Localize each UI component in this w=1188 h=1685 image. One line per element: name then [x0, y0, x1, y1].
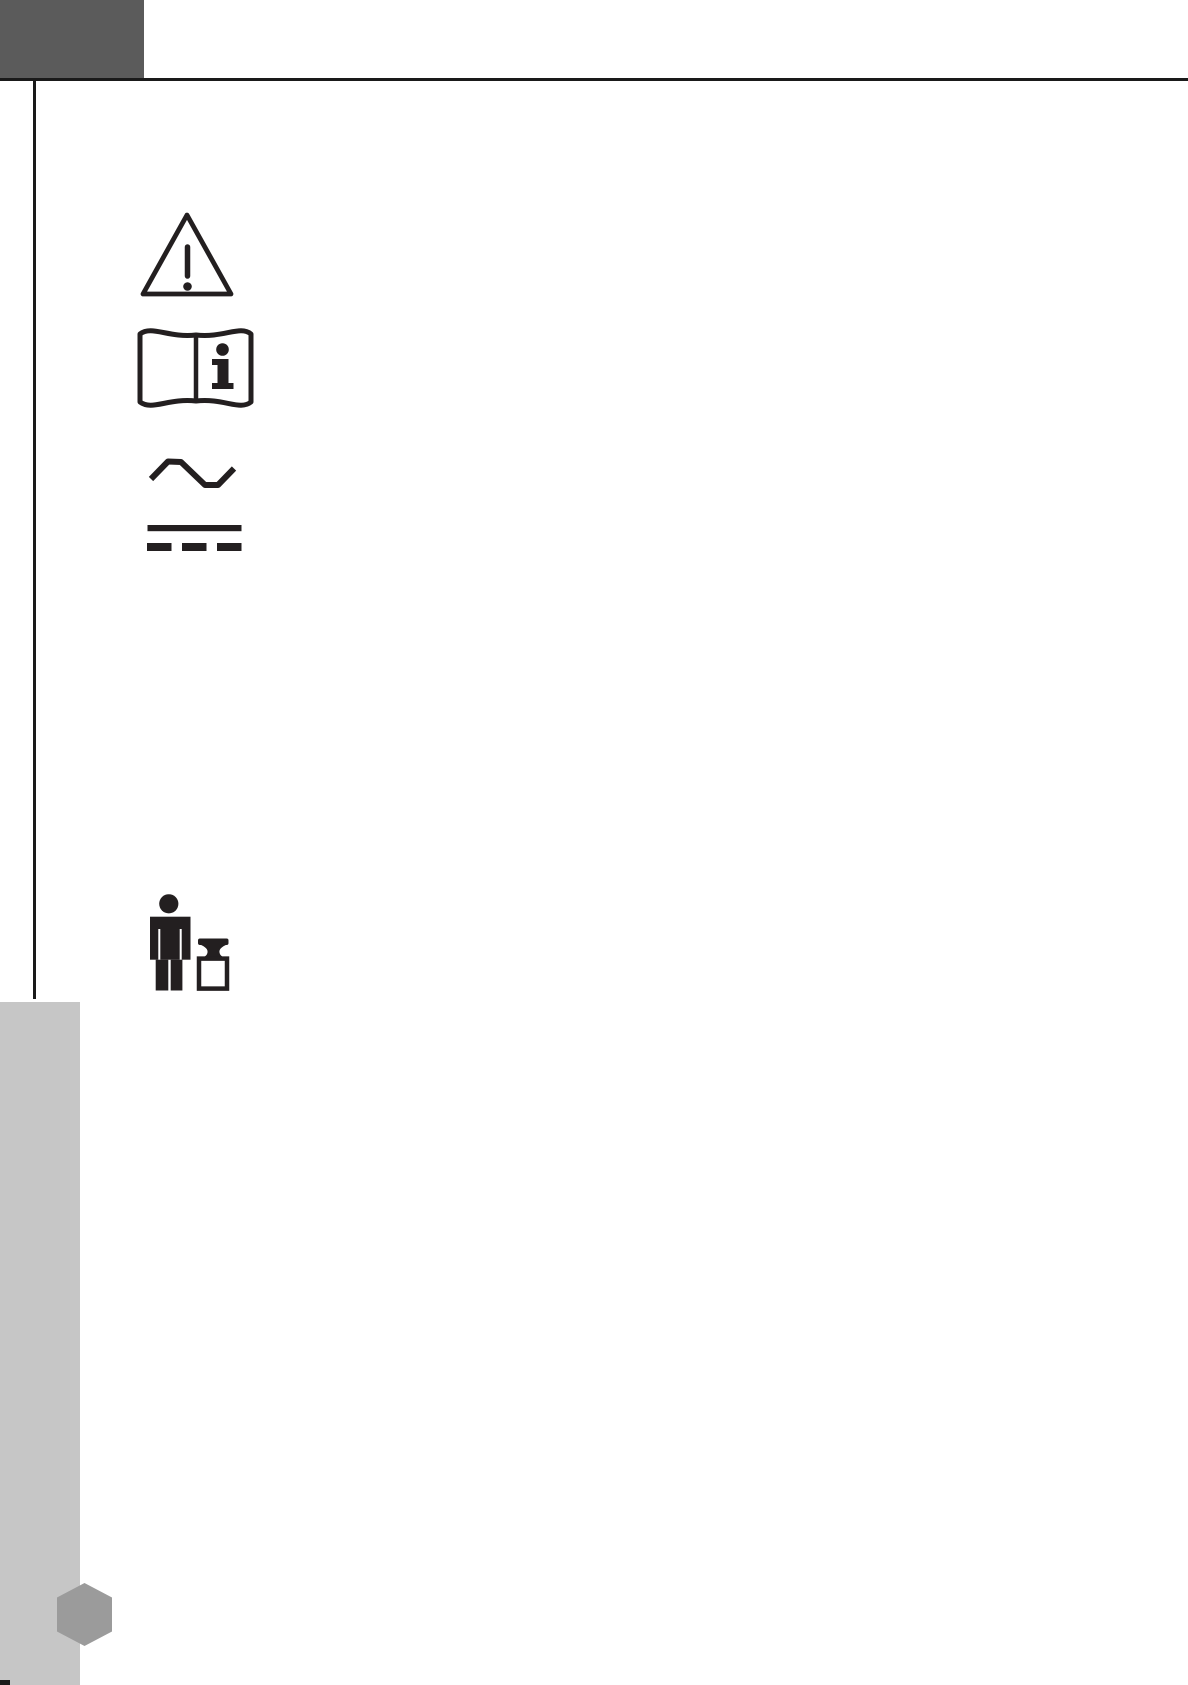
dc-current-icon	[146, 522, 244, 554]
header-block	[0, 0, 144, 79]
weight-limit-person-icon	[148, 892, 240, 994]
ac-current-icon	[146, 455, 240, 491]
corner-mark	[0, 1680, 10, 1685]
manual-page	[0, 0, 1188, 1685]
warning-triangle-icon	[138, 209, 238, 301]
hexagon-page-marker	[54, 1580, 116, 1649]
top-rule	[0, 78, 1188, 81]
read-manual-icon	[136, 323, 256, 411]
left-rule	[33, 81, 36, 999]
